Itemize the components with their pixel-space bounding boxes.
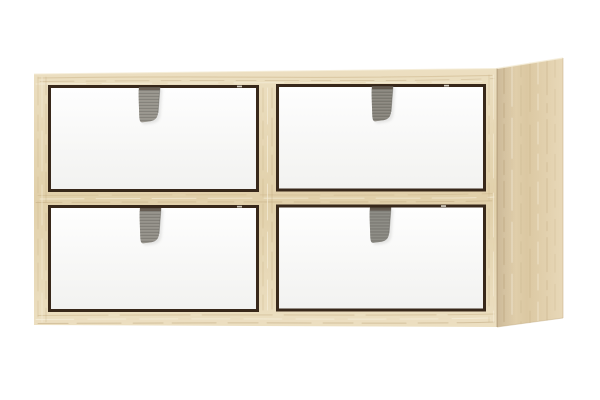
side-corner-shading — [497, 65, 516, 327]
drawer-tab-bottom-left — [140, 208, 164, 245]
product-image — [0, 0, 600, 400]
cabinet-photo — [0, 0, 600, 400]
cabinet-side-panel — [497, 58, 563, 327]
drawer-tab-bottom-right — [370, 208, 394, 245]
drawer-tab-top-right — [372, 86, 396, 123]
drawer-tab-top-left — [139, 87, 163, 124]
